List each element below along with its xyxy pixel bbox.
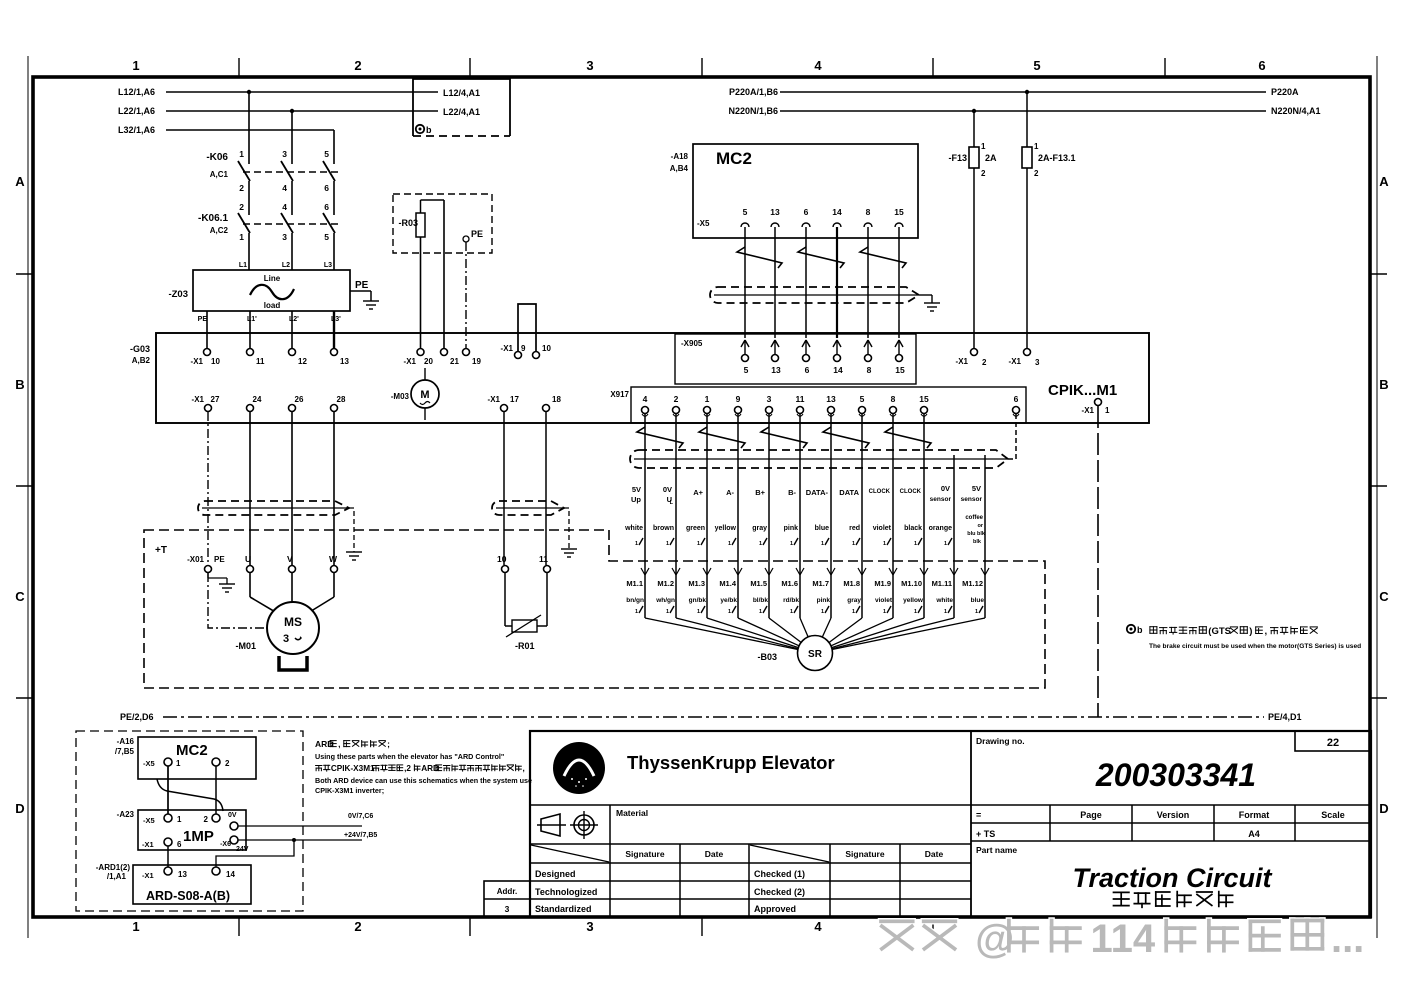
svg-text:A-: A-	[726, 488, 734, 497]
svg-text:1: 1	[728, 609, 731, 615]
svg-text:M: M	[420, 389, 429, 401]
svg-text:,2: ,2	[404, 764, 411, 773]
svg-text:-ARD1(2): -ARD1(2)	[96, 863, 131, 872]
svg-text:6: 6	[1258, 58, 1265, 73]
svg-text:Designed: Designed	[535, 869, 576, 879]
svg-text:5V: 5V	[972, 484, 981, 493]
svg-text:1: 1	[981, 142, 986, 151]
svg-text:14: 14	[833, 365, 843, 375]
svg-text:sensor: sensor	[930, 496, 952, 503]
svg-text:1: 1	[1105, 406, 1110, 415]
svg-text:yellow: yellow	[903, 597, 924, 604]
svg-text:L2': L2'	[289, 316, 299, 323]
svg-text:violet: violet	[875, 597, 893, 604]
svg-text:1: 1	[728, 541, 731, 547]
svg-text:MC2: MC2	[716, 149, 752, 168]
svg-text:10: 10	[211, 357, 220, 366]
svg-text:-X1: -X1	[1009, 357, 1022, 366]
svg-text:3: 3	[282, 232, 287, 242]
svg-text:4: 4	[643, 394, 648, 404]
svg-text:Part name: Part name	[976, 845, 1017, 855]
svg-text:bn/gn: bn/gn	[626, 597, 644, 604]
svg-text:11: 11	[539, 554, 548, 564]
svg-text:P220A: P220A	[1271, 87, 1299, 97]
svg-text:Technologized: Technologized	[535, 887, 597, 897]
svg-text:white: white	[624, 525, 643, 532]
svg-text:1: 1	[132, 919, 139, 934]
svg-text:-R01: -R01	[515, 641, 535, 651]
svg-text:1: 1	[239, 232, 244, 242]
svg-text:-R03: -R03	[398, 218, 418, 228]
svg-text:1: 1	[944, 541, 947, 547]
svg-text:2: 2	[674, 394, 679, 404]
svg-text:6: 6	[177, 840, 182, 849]
svg-text:M1.3: M1.3	[688, 579, 705, 588]
svg-text:Page: Page	[1080, 810, 1102, 820]
svg-text:3: 3	[586, 58, 593, 73]
svg-text:21: 21	[450, 357, 459, 366]
svg-text:M1.12: M1.12	[962, 579, 983, 588]
svg-text:19: 19	[472, 357, 481, 366]
svg-text:A,C2: A,C2	[210, 226, 229, 235]
svg-text:blue: blue	[971, 597, 985, 604]
svg-text:M1.2: M1.2	[657, 579, 674, 588]
svg-text:M1.11: M1.11	[932, 579, 952, 588]
svg-text:1: 1	[975, 609, 978, 615]
svg-text:b: b	[426, 125, 432, 135]
svg-text:-X1: -X1	[956, 357, 969, 366]
svg-text:2: 2	[354, 919, 361, 934]
svg-text:1: 1	[759, 609, 762, 615]
svg-text:1: 1	[176, 759, 181, 768]
svg-text:-M01: -M01	[235, 641, 256, 651]
svg-text:pink: pink	[784, 525, 798, 532]
svg-text:=: =	[976, 810, 981, 820]
svg-text:,: ,	[523, 764, 525, 773]
svg-text:Checked (2): Checked (2)	[754, 887, 805, 897]
svg-text:L1: L1	[239, 262, 247, 269]
svg-text:blue: blue	[815, 525, 829, 532]
svg-text:1: 1	[914, 541, 917, 547]
svg-text:B: B	[15, 377, 24, 392]
svg-text:114: 114	[1091, 917, 1156, 961]
svg-text:D: D	[1379, 801, 1388, 816]
svg-text:Traction Circuit: Traction Circuit	[1072, 863, 1272, 893]
svg-text:2: 2	[982, 358, 987, 367]
svg-text:coffee: coffee	[965, 515, 983, 521]
svg-text:3: 3	[283, 633, 289, 645]
svg-text:M1.4: M1.4	[719, 579, 737, 588]
svg-text:-X1: -X1	[142, 871, 154, 880]
svg-text:L2: L2	[282, 262, 290, 269]
svg-text:M1.10: M1.10	[901, 579, 922, 588]
svg-text:5V: 5V	[632, 485, 641, 494]
svg-text:CLOCK: CLOCK	[869, 489, 891, 495]
svg-text:load: load	[264, 301, 281, 310]
svg-text:M1.7: M1.7	[812, 579, 829, 588]
svg-text:1: 1	[790, 541, 793, 547]
svg-text:Up: Up	[631, 495, 641, 504]
svg-text:A: A	[1379, 174, 1389, 189]
svg-text:B: B	[1379, 377, 1388, 392]
svg-text:2: 2	[1034, 169, 1039, 178]
svg-text:5: 5	[743, 207, 748, 217]
svg-text:Both ARD device can use this s: Both ARD device can use this schematics …	[315, 776, 532, 785]
svg-text:L3: L3	[324, 262, 332, 269]
svg-text:Addr.: Addr.	[497, 887, 517, 896]
svg-text:Signature: Signature	[845, 849, 884, 859]
svg-text:X917: X917	[610, 390, 629, 399]
svg-text:M1.1: M1.1	[626, 579, 643, 588]
svg-text:C: C	[15, 589, 25, 604]
svg-text:Standardized: Standardized	[535, 904, 592, 914]
svg-text:22: 22	[1327, 737, 1339, 749]
svg-text:1: 1	[821, 609, 824, 615]
svg-text:SR: SR	[808, 649, 823, 660]
svg-text:0V/7,C6: 0V/7,C6	[348, 813, 373, 820]
svg-text:Using these parts when the ele: Using these parts when the elevator has …	[315, 752, 504, 761]
svg-text:+T: +T	[155, 545, 167, 556]
svg-text:CPIK...M1: CPIK...M1	[1048, 382, 1117, 399]
svg-text:1: 1	[883, 609, 886, 615]
svg-text:15: 15	[895, 365, 905, 375]
svg-text:-X1: -X1	[488, 395, 501, 404]
svg-text:C: C	[1379, 589, 1389, 604]
svg-text:green: green	[686, 525, 705, 532]
svg-text:yellow: yellow	[715, 525, 737, 532]
svg-text:1: 1	[635, 609, 638, 615]
svg-text:U: U	[245, 554, 251, 564]
svg-text:DATA: DATA	[839, 488, 859, 497]
svg-text:PE: PE	[471, 229, 483, 239]
svg-text:13: 13	[178, 870, 187, 879]
svg-text:violet: violet	[873, 525, 892, 532]
svg-text:,: ,	[338, 739, 340, 749]
svg-text:24V: 24V	[236, 846, 249, 853]
svg-text:2: 2	[225, 759, 230, 768]
svg-text:2: 2	[204, 815, 209, 824]
svg-text:18: 18	[552, 395, 561, 404]
svg-text:PE: PE	[214, 555, 225, 564]
svg-text:L1': L1'	[247, 316, 257, 323]
svg-text:+24V/7,B5: +24V/7,B5	[344, 832, 377, 839]
svg-text:20: 20	[424, 357, 433, 366]
svg-text:rd/bk: rd/bk	[783, 597, 799, 604]
svg-text:13: 13	[340, 357, 349, 366]
svg-text:The brake circuit must be used: The brake circuit must be used when the …	[1149, 643, 1361, 650]
svg-text:1: 1	[697, 609, 700, 615]
svg-text:PE: PE	[198, 316, 208, 323]
svg-text:2: 2	[239, 183, 244, 193]
svg-text:-F13: -F13	[948, 153, 967, 163]
svg-text:2: 2	[981, 169, 986, 178]
svg-text:B-: B-	[788, 488, 796, 497]
svg-text:1: 1	[666, 609, 669, 615]
svg-text:Version: Version	[1157, 810, 1190, 820]
svg-text:8: 8	[867, 365, 872, 375]
svg-text:11: 11	[796, 394, 805, 404]
svg-text:Scale: Scale	[1321, 810, 1345, 820]
svg-text:6: 6	[804, 207, 809, 217]
svg-text:DATA-: DATA-	[806, 488, 829, 497]
svg-text:1: 1	[1034, 142, 1039, 151]
svg-text:+ TS: + TS	[976, 829, 995, 839]
svg-text:M1.8: M1.8	[843, 579, 860, 588]
svg-text:L32/1,A6: L32/1,A6	[118, 125, 155, 135]
svg-text:PE/4,D1: PE/4,D1	[1268, 712, 1302, 722]
svg-text:2: 2	[354, 58, 361, 73]
svg-text:gray: gray	[847, 597, 861, 604]
svg-text:26: 26	[295, 395, 304, 404]
svg-text:1: 1	[697, 541, 700, 547]
svg-text:1: 1	[914, 609, 917, 615]
svg-text:Line: Line	[264, 274, 281, 283]
svg-text:1: 1	[790, 609, 793, 615]
svg-text:M1.5: M1.5	[750, 579, 767, 588]
svg-text:A: A	[15, 174, 25, 189]
svg-text:10: 10	[542, 344, 551, 353]
svg-text:1: 1	[635, 541, 638, 547]
svg-text:15: 15	[919, 394, 929, 404]
svg-text:Date: Date	[705, 849, 724, 859]
svg-text:4: 4	[814, 58, 822, 73]
svg-text:-X1: -X1	[501, 344, 514, 353]
svg-text:5: 5	[744, 365, 749, 375]
svg-text:0V: 0V	[941, 484, 950, 493]
svg-text:-X5: -X5	[143, 759, 155, 768]
svg-text:A,C1: A,C1	[210, 170, 229, 179]
svg-text:-X5: -X5	[697, 219, 710, 228]
svg-text:bl/bk: bl/bk	[753, 597, 769, 604]
svg-text:-Z03: -Z03	[168, 289, 188, 300]
svg-text:1: 1	[852, 609, 855, 615]
svg-text:-X1: -X1	[142, 840, 154, 849]
svg-text:3: 3	[586, 919, 593, 934]
svg-text:A,B2: A,B2	[132, 356, 151, 365]
svg-text:-A18: -A18	[671, 152, 689, 161]
svg-text:1: 1	[883, 541, 886, 547]
svg-text:D: D	[15, 801, 24, 816]
svg-text:Drawing no.: Drawing no.	[976, 736, 1025, 746]
svg-text:-M03: -M03	[391, 392, 410, 401]
svg-text:2A: 2A	[985, 153, 997, 163]
svg-text:N220N/1,B6: N220N/1,B6	[728, 106, 778, 116]
svg-text:11: 11	[256, 357, 265, 366]
svg-text:wh/gn: wh/gn	[655, 597, 675, 604]
svg-text:-X1: -X1	[1082, 406, 1095, 415]
svg-text:MC2: MC2	[176, 742, 208, 759]
svg-text:V: V	[287, 554, 293, 564]
svg-text:14: 14	[226, 870, 235, 879]
svg-text:13: 13	[826, 394, 836, 404]
svg-text:CPIK-X3M1: CPIK-X3M1	[331, 764, 375, 773]
svg-text:4: 4	[282, 202, 287, 212]
svg-text:-B03: -B03	[757, 652, 777, 662]
svg-text:1: 1	[177, 815, 182, 824]
svg-text:brown: brown	[653, 525, 674, 532]
svg-text:A4: A4	[1248, 829, 1260, 839]
svg-text:13: 13	[770, 207, 780, 217]
svg-text:4: 4	[282, 183, 287, 193]
svg-text:1: 1	[852, 541, 855, 547]
svg-text:0V: 0V	[663, 485, 672, 494]
svg-text:P220A/1,B6: P220A/1,B6	[729, 87, 778, 97]
svg-text:B+: B+	[755, 488, 765, 497]
svg-text:-X01: -X01	[187, 555, 204, 564]
svg-text:W: W	[329, 554, 338, 564]
svg-text:M1.9: M1.9	[874, 579, 891, 588]
svg-text:...: ...	[1331, 917, 1364, 961]
svg-text:-G03: -G03	[130, 344, 150, 354]
svg-text:1: 1	[944, 609, 947, 615]
svg-text:white: white	[935, 597, 953, 604]
svg-text:5: 5	[860, 394, 865, 404]
svg-text:-X6: -X6	[220, 841, 231, 848]
svg-text:L22/1,A6: L22/1,A6	[118, 106, 155, 116]
svg-text:Format: Format	[1239, 810, 1270, 820]
svg-text:1: 1	[666, 541, 669, 547]
svg-text:6: 6	[324, 202, 329, 212]
svg-text:ThyssenKrupp Elevator: ThyssenKrupp Elevator	[627, 752, 835, 773]
svg-text:1: 1	[132, 58, 139, 73]
svg-text:;: ;	[387, 739, 390, 749]
svg-text:L12/4,A1: L12/4,A1	[443, 88, 480, 98]
svg-text:/7,B5: /7,B5	[115, 747, 135, 756]
svg-text:Material: Material	[616, 808, 648, 818]
svg-text:28: 28	[337, 395, 346, 404]
svg-text:M1.6: M1.6	[781, 579, 798, 588]
svg-text:4: 4	[814, 919, 822, 934]
svg-text:9: 9	[736, 394, 741, 404]
svg-text:3: 3	[767, 394, 772, 404]
svg-text:1: 1	[759, 541, 762, 547]
svg-text:black: black	[904, 525, 922, 532]
svg-text:3: 3	[1035, 358, 1040, 367]
svg-text:Date: Date	[925, 849, 944, 859]
svg-text:6: 6	[324, 183, 329, 193]
svg-text:pink: pink	[817, 597, 831, 604]
svg-text:orange: orange	[929, 525, 952, 532]
svg-text:6: 6	[1014, 394, 1019, 404]
svg-text:2A-F13.1: 2A-F13.1	[1038, 153, 1076, 163]
svg-text:-X1: -X1	[192, 395, 205, 404]
svg-text:2: 2	[239, 202, 244, 212]
svg-text:(GTS: (GTS	[1208, 626, 1231, 637]
svg-text:or: or	[978, 523, 984, 529]
svg-text:,: ,	[1265, 626, 1268, 637]
svg-text:ye/bk: ye/bk	[720, 597, 737, 604]
svg-text:red: red	[849, 525, 860, 532]
svg-text:10: 10	[497, 554, 507, 564]
svg-text:-A23: -A23	[117, 810, 135, 819]
svg-text:blk: blk	[973, 539, 982, 545]
svg-text:12: 12	[298, 357, 307, 366]
svg-text:-K06: -K06	[206, 152, 228, 163]
svg-text:5: 5	[324, 232, 329, 242]
svg-text:1: 1	[705, 394, 710, 404]
svg-text:5: 5	[1033, 58, 1040, 73]
svg-text:5: 5	[324, 149, 329, 159]
svg-text:14: 14	[832, 207, 842, 217]
svg-text:-K06.1: -K06.1	[198, 213, 228, 224]
svg-text:MS: MS	[284, 615, 302, 629]
svg-text:3: 3	[505, 904, 510, 914]
svg-text:Signature: Signature	[625, 849, 664, 859]
svg-text:PE/2,D6: PE/2,D6	[120, 712, 154, 722]
svg-text:-A16: -A16	[117, 737, 135, 746]
svg-text:3: 3	[282, 149, 287, 159]
svg-text:15: 15	[894, 207, 904, 217]
svg-text:9: 9	[521, 344, 526, 353]
svg-text:gn/bk: gn/bk	[689, 597, 707, 604]
svg-text:L3': L3'	[331, 316, 341, 323]
svg-text:Checked (1): Checked (1)	[754, 869, 805, 879]
svg-text:L22/4,A1: L22/4,A1	[443, 107, 480, 117]
svg-text:200303341: 200303341	[1095, 757, 1256, 793]
svg-text:27: 27	[211, 395, 220, 404]
svg-text:-X1: -X1	[404, 357, 417, 366]
svg-text:-X905: -X905	[681, 339, 703, 348]
svg-text:13: 13	[771, 365, 781, 375]
svg-text:1: 1	[821, 541, 824, 547]
svg-text:CPIK-X3M1 inverter;: CPIK-X3M1 inverter;	[315, 786, 384, 795]
svg-text:1MP: 1MP	[183, 828, 214, 845]
svg-text:L12/1,A6: L12/1,A6	[118, 87, 155, 97]
svg-text:1: 1	[239, 149, 244, 159]
svg-text:gray: gray	[752, 525, 767, 532]
svg-text:N220N/4,A1: N220N/4,A1	[1271, 106, 1321, 116]
svg-text:A,B4: A,B4	[670, 164, 689, 173]
svg-text:blu blk: blu blk	[967, 531, 986, 537]
svg-text:-X1: -X1	[191, 357, 204, 366]
svg-text:ARD-S08-A(B): ARD-S08-A(B)	[146, 889, 230, 903]
svg-text:Approved: Approved	[754, 904, 796, 914]
svg-text:): )	[1249, 626, 1252, 637]
svg-text:b: b	[1137, 625, 1143, 635]
svg-text:A+: A+	[693, 488, 703, 497]
svg-text:17: 17	[510, 395, 519, 404]
svg-text:CLOCK: CLOCK	[900, 489, 922, 495]
svg-text:8: 8	[866, 207, 871, 217]
svg-text:/1,A1: /1,A1	[107, 872, 127, 881]
svg-text:0V: 0V	[228, 812, 237, 819]
svg-text:-X5: -X5	[143, 816, 155, 825]
svg-text:sensor: sensor	[961, 496, 983, 503]
svg-text:6: 6	[805, 365, 810, 375]
svg-text:PE: PE	[355, 280, 369, 291]
svg-text:8: 8	[891, 394, 896, 404]
svg-text:24: 24	[253, 395, 262, 404]
